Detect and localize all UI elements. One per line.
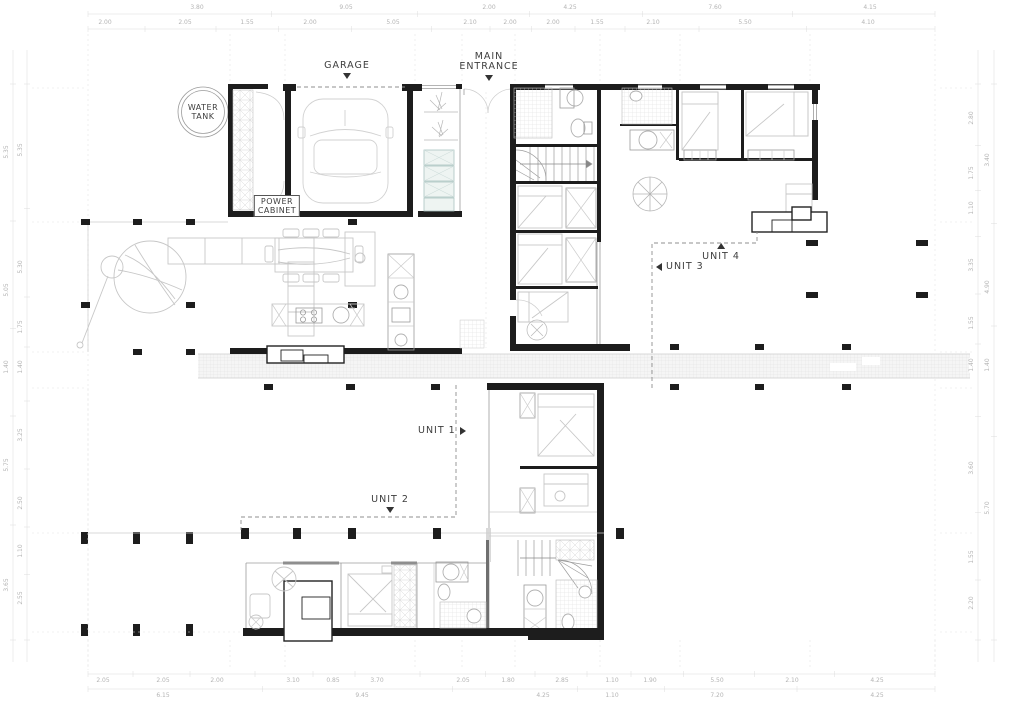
dim-label: 5.05	[4, 282, 10, 297]
unit-3-label: UNIT 3	[656, 261, 704, 272]
unit4-kitchen-counter	[752, 207, 827, 232]
garage-arrow-icon	[343, 73, 351, 79]
dim-label: 2.05	[455, 678, 470, 684]
kitchen-wall-strip	[388, 254, 414, 350]
dim-label: 4.25	[869, 678, 884, 684]
dim-label: 3.65	[4, 577, 10, 592]
dim-label: 2.05	[95, 678, 110, 684]
rug	[114, 241, 186, 313]
dim-label: 1.90	[642, 678, 657, 684]
dim-label: 3.70	[369, 678, 384, 684]
dim-label: 1.55	[969, 549, 975, 564]
dim-label: 3.60	[969, 460, 975, 475]
entrance-block	[510, 84, 827, 351]
dim-label: 1.75	[18, 319, 24, 334]
unit-3-arrow-icon	[656, 263, 662, 271]
dim-label: 1.10	[969, 200, 975, 215]
dim-label: 2.50	[18, 495, 24, 510]
main-entrance-arrow-icon	[485, 75, 493, 81]
dim-label: 2.00	[545, 20, 560, 26]
unit-1-label: UNIT 1	[418, 425, 466, 436]
storage-cabinets	[233, 90, 253, 210]
floor-plan-page: WATER TANK GARAGE MAIN ENTRANCE POWER CA…	[0, 0, 1024, 719]
dim-label: 9.45	[354, 693, 369, 699]
dim-label: 2.10	[645, 20, 660, 26]
dim-label: 1.10	[18, 543, 24, 558]
dim-label: 1.55	[969, 315, 975, 330]
dim-label: 2.05	[155, 678, 170, 684]
bathroom-upper-middle	[622, 88, 674, 150]
bedroom-bottom-left-2	[348, 566, 392, 626]
dim-label: 2.10	[462, 20, 477, 26]
stairs-upper	[516, 147, 594, 181]
dim-label: 3.35	[969, 257, 975, 272]
dim-label: 2.85	[554, 678, 569, 684]
unit-1-arrow-icon	[460, 427, 466, 435]
car	[298, 99, 393, 203]
dim-label: 1.40	[969, 357, 975, 372]
dim-label: 1.10	[604, 693, 619, 699]
dim-label: 1.55	[239, 20, 254, 26]
dim-label: 2.10	[784, 678, 799, 684]
dim-label: 2.00	[97, 20, 112, 26]
counter-island-south	[267, 346, 344, 363]
locker-cabinets	[424, 150, 454, 211]
dim-label: 2.00	[481, 5, 496, 11]
unit-2-label: UNIT 2	[371, 494, 409, 513]
terrace-columns-right	[806, 240, 928, 298]
entry-door-element	[284, 581, 332, 641]
dimension-lines	[10, 11, 997, 692]
dim-label: 7.60	[707, 5, 722, 11]
plant	[527, 320, 547, 340]
dim-label: 2.80	[969, 110, 975, 125]
dim-label: 5.35	[18, 142, 24, 157]
dim-label: 1.55	[589, 20, 604, 26]
dim-label: 1.75	[969, 165, 975, 180]
dim-label: 1.80	[500, 678, 515, 684]
main-entrance-label: MAIN ENTRANCE	[459, 52, 518, 72]
structural-grid-lines	[32, 34, 972, 670]
terrace-columns-bottom-left	[81, 388, 243, 636]
columns-south-of-garage	[264, 384, 440, 390]
dim-label: 3.10	[285, 678, 300, 684]
dim-label: 1.40	[18, 359, 24, 374]
dim-label: 3.80	[189, 5, 204, 11]
bedroom-unit2-small	[544, 474, 588, 506]
dim-label: 2.20	[969, 595, 975, 610]
dim-label: 2.55	[18, 590, 24, 605]
dim-label: 5.05	[385, 20, 400, 26]
dim-label: 4.90	[985, 279, 991, 294]
dim-label: 5.70	[985, 500, 991, 515]
dim-label: 2.00	[502, 20, 517, 26]
unit-4-label: UNIT 4	[702, 243, 740, 262]
dim-label: 5.35	[4, 144, 10, 159]
dim-label: 4.15	[862, 5, 877, 11]
unit-2-arrow-icon	[386, 507, 394, 513]
sofa	[168, 238, 314, 336]
floor-plan-drawing	[0, 0, 1024, 719]
dim-label: 0.85	[325, 678, 340, 684]
dim-label: 5.50	[737, 20, 752, 26]
dim-label: 4.25	[869, 693, 884, 699]
dim-label: 5.75	[4, 457, 10, 472]
water-tank-label: WATER TANK	[188, 103, 218, 121]
door-swing	[256, 92, 284, 120]
bathroom-bottom-left	[436, 562, 486, 628]
dim-label: 3.40	[985, 152, 991, 167]
living-area	[77, 219, 484, 363]
dim-label: 2.00	[209, 678, 224, 684]
dim-label: 9.05	[338, 5, 353, 11]
dim-label: 5.30	[18, 259, 24, 274]
dim-label: 1.40	[985, 357, 991, 372]
power-cabinet-label: POWER CABINET	[254, 195, 300, 217]
bedrooms-left-column	[518, 186, 596, 340]
dim-label: 2.05	[177, 20, 192, 26]
dim-label: 4.10	[860, 20, 875, 26]
entry-mat	[460, 320, 484, 348]
bedroom-unit1	[538, 394, 594, 456]
dim-label: 4.25	[562, 5, 577, 11]
hall-plant	[633, 177, 667, 211]
dim-label: 6.15	[155, 693, 170, 699]
bottom-middle-unit	[486, 383, 604, 640]
dim-label: 4.25	[535, 693, 550, 699]
tv-cabinet	[345, 232, 375, 286]
unit-boundary-lines	[241, 232, 757, 530]
dim-label: 5.50	[709, 678, 724, 684]
garage-label: GARAGE	[324, 61, 370, 71]
garage-block	[178, 84, 462, 217]
bathroom-lower	[524, 580, 597, 633]
dim-label: 2.00	[302, 20, 317, 26]
dim-label: 1.40	[4, 359, 10, 374]
dim-label: 1.10	[604, 678, 619, 684]
bathroom-upper-left	[514, 88, 592, 138]
wardrobe	[394, 565, 416, 627]
bedroom-middle	[682, 92, 718, 160]
unit-4-arrow-icon	[717, 243, 725, 249]
dim-label: 3.25	[18, 427, 24, 442]
main-entrance-door	[464, 89, 512, 113]
dim-label: 7.20	[709, 693, 724, 699]
vestibule-plants	[424, 92, 458, 140]
bedroom-right	[746, 92, 808, 160]
